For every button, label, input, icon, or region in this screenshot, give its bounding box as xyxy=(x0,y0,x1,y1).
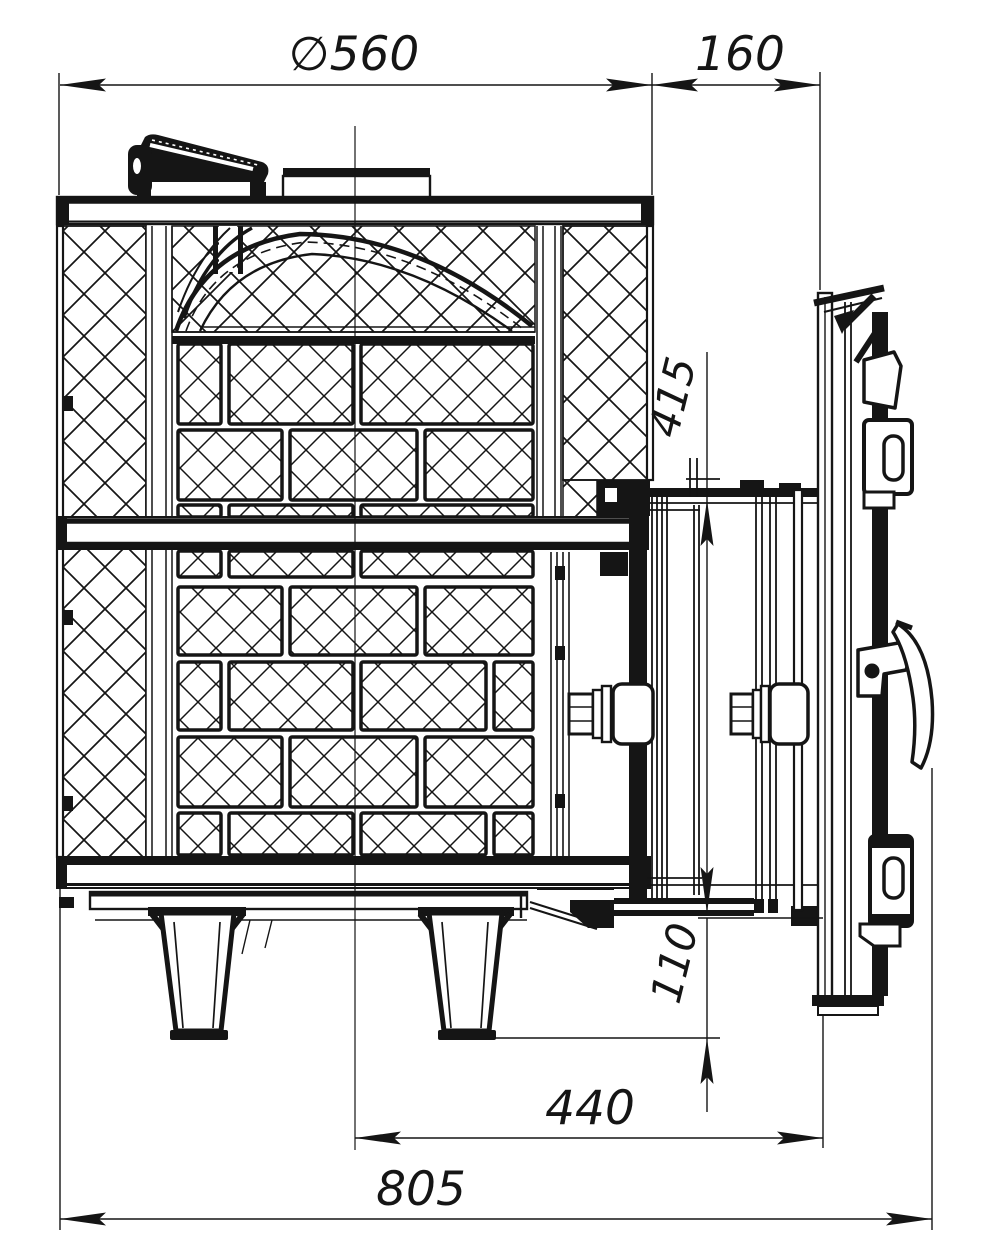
hinge-bolt-right xyxy=(731,684,808,744)
stone-dome xyxy=(172,226,535,344)
latch-bracket-upper xyxy=(864,420,912,508)
stove-section-drawing: ∅560 160 415 110 440 xyxy=(0,0,999,1256)
handle-pivot xyxy=(865,664,880,679)
firebox-flange-lower xyxy=(600,552,628,576)
bottom-band xyxy=(57,857,650,888)
hinge-bolt-left xyxy=(569,684,653,744)
dim-label-door-offset: 160 xyxy=(695,27,785,82)
middle-band xyxy=(57,517,648,549)
dim-label-overall-depth: 805 xyxy=(376,1162,466,1217)
technical-drawing-page: ∅560 160 415 110 440 xyxy=(0,0,999,1256)
door-bottom-cap xyxy=(812,995,884,1015)
dim-label-diameter: ∅560 xyxy=(289,27,420,82)
chimney-stub xyxy=(283,168,430,197)
dim-label-center-to-door: 440 xyxy=(545,1081,635,1136)
